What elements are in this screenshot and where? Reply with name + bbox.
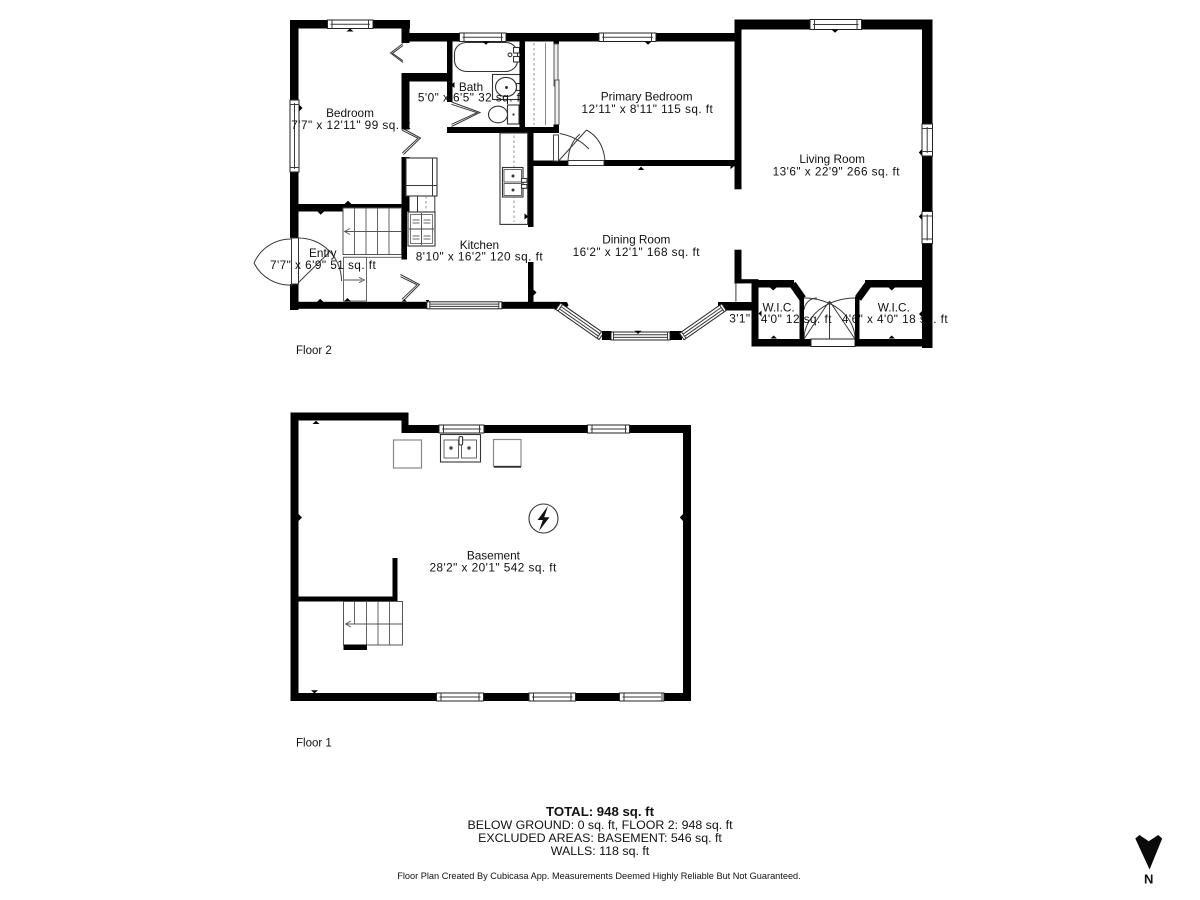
svg-text:TOTAL: 948 sq. ft: TOTAL: 948 sq. ft	[546, 804, 655, 819]
svg-text:EXCLUDED AREAS: BASEMENT: 546: EXCLUDED AREAS: BASEMENT: 546 sq. ft	[478, 831, 722, 845]
svg-text:12'11" x 8'11" 115 sq. ft: 12'11" x 8'11" 115 sq. ft	[582, 102, 714, 116]
svg-text:28'2" x 20'1" 542 sq. ft: 28'2" x 20'1" 542 sq. ft	[429, 560, 557, 574]
svg-text:3'1": 3'1"	[729, 312, 750, 326]
svg-text:5'0" x 6'5" 32 sq. ft: 5'0" x 6'5" 32 sq. ft	[418, 90, 525, 104]
svg-text:7'7" x 12'11" 99 sq. ft: 7'7" x 12'11" 99 sq. ft	[291, 118, 411, 132]
svg-text:16'2" x 12'1" 168 sq. ft: 16'2" x 12'1" 168 sq. ft	[573, 245, 701, 259]
svg-text:4'0" 12 sq. ft: 4'0" 12 sq. ft	[761, 312, 832, 326]
svg-text:Floor 2: Floor 2	[296, 345, 332, 357]
svg-text:Floor Plan Created By Cubicasa: Floor Plan Created By Cubicasa App. Meas…	[397, 871, 800, 881]
svg-text:Floor 1: Floor 1	[296, 738, 332, 750]
svg-text:8'10" x 16'2" 120 sq. ft: 8'10" x 16'2" 120 sq. ft	[416, 249, 544, 263]
svg-text:7'7" x 6'9" 51 sq. ft: 7'7" x 6'9" 51 sq. ft	[270, 258, 377, 272]
svg-text:WALLS: 118 sq. ft: WALLS: 118 sq. ft	[551, 844, 650, 858]
svg-text:13'6" x 22'9" 266 sq. ft: 13'6" x 22'9" 266 sq. ft	[773, 164, 901, 178]
svg-text:BELOW GROUND: 0 sq. ft, FLOOR: BELOW GROUND: 0 sq. ft, FLOOR 2: 948 sq.…	[467, 818, 733, 832]
svg-text:N: N	[1144, 872, 1153, 887]
